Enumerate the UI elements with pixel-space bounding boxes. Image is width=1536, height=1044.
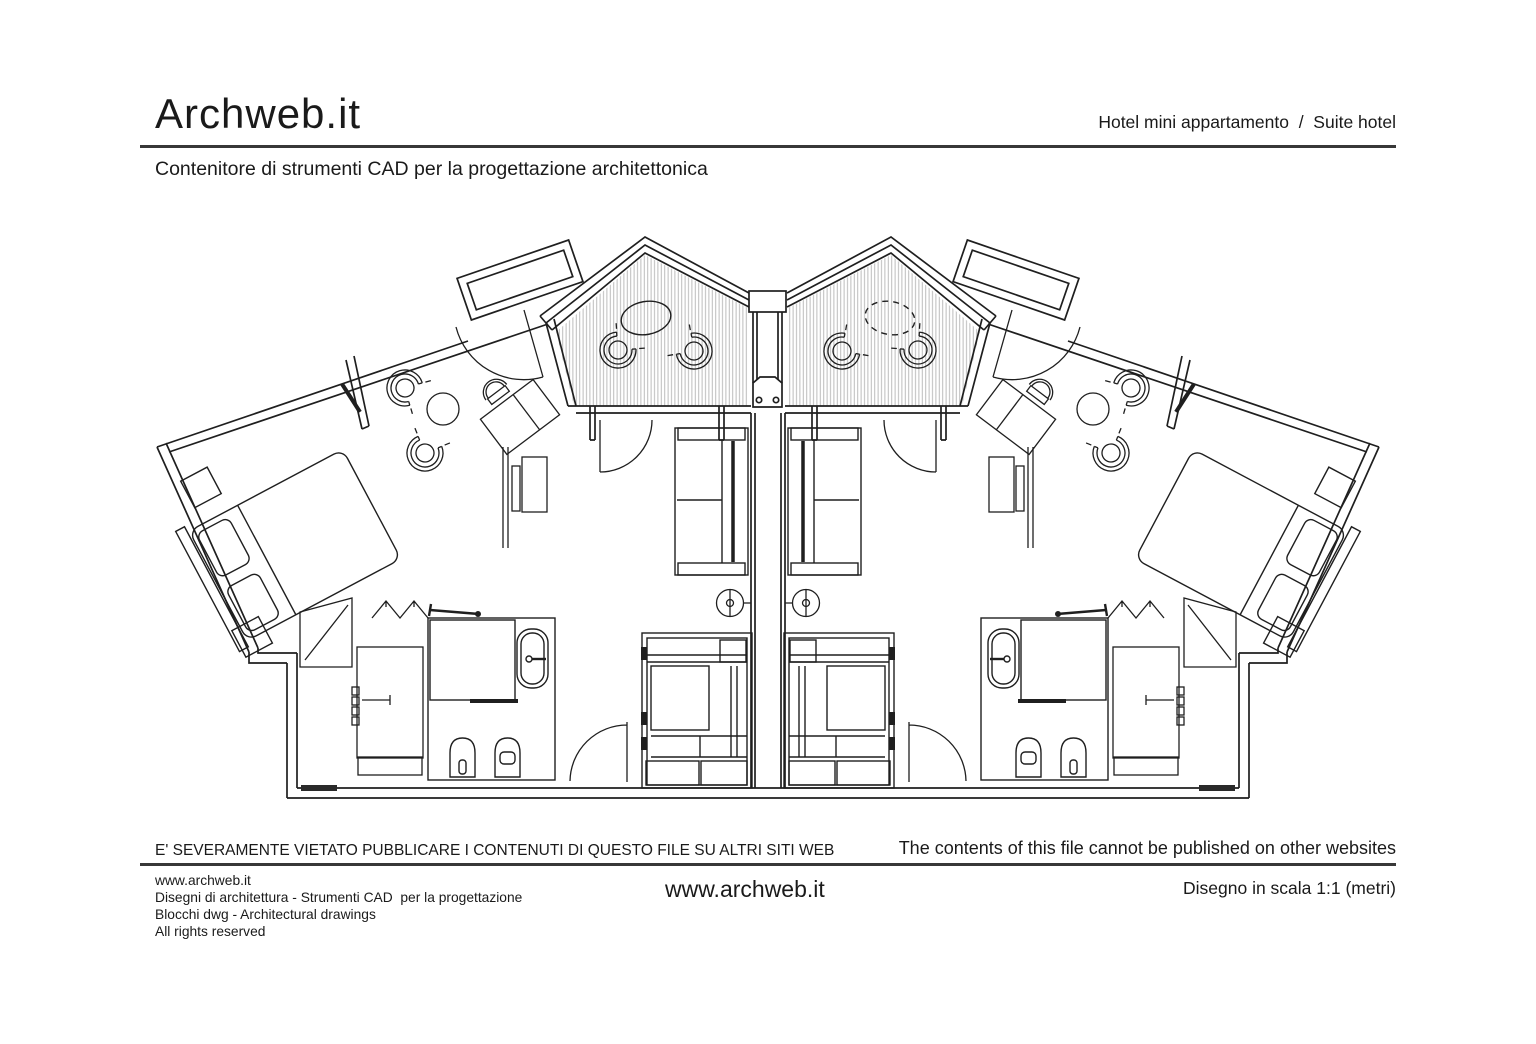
bathroom: [428, 618, 555, 780]
pillow: [225, 572, 280, 633]
living-terrace-door: [600, 420, 652, 472]
terrace-door: [456, 310, 543, 380]
suite-left: [156, 237, 768, 798]
tv-panel: [512, 466, 520, 511]
copyright-notice-italian: E' SEVERAMENTE VIETATO PUBBLICARE I CONT…: [155, 842, 834, 860]
scale-note: Disegno in scala 1:1 (metri): [1183, 878, 1396, 899]
toilet: [495, 738, 520, 777]
sofa: [675, 428, 748, 575]
page: Archweb.it Hotel mini appartamento / Sui…: [0, 0, 1536, 1044]
terrace-front-wall: [568, 406, 751, 440]
bathroom-door: [570, 722, 627, 782]
pillow: [196, 517, 251, 578]
desk-chair: [478, 374, 511, 406]
footer-line3: Blocchi dwg - Architectural drawings: [155, 906, 522, 923]
footer-site: www.archweb.it: [155, 872, 522, 889]
bidet: [450, 738, 475, 777]
footer-info: www.archweb.it Disegni di architettura -…: [155, 872, 522, 940]
desk: [465, 360, 559, 455]
tv-cabinet: [522, 457, 547, 512]
party-wall: [749, 291, 786, 788]
tv-board: [503, 447, 508, 548]
threshold: [301, 785, 337, 791]
wardrobe-area: [300, 598, 481, 775]
side-table-round: [427, 393, 459, 425]
shower: [430, 620, 515, 700]
footer-line2: Disegni di architettura - Strumenti CAD …: [155, 889, 522, 906]
copyright-notice-english: The contents of this file cannot be publ…: [899, 838, 1396, 859]
footer-line4: All rights reserved: [155, 923, 522, 940]
faucet: [526, 656, 532, 662]
service-table: [717, 589, 752, 617]
double-bed: [156, 407, 408, 659]
footer-site-center: www.archweb.it: [665, 876, 825, 903]
coat-hooks: [372, 601, 428, 618]
closet-unit: [641, 633, 752, 788]
footer-rule: [140, 863, 1396, 866]
closet-rod: [429, 604, 479, 616]
suite-right: [768, 237, 1380, 798]
